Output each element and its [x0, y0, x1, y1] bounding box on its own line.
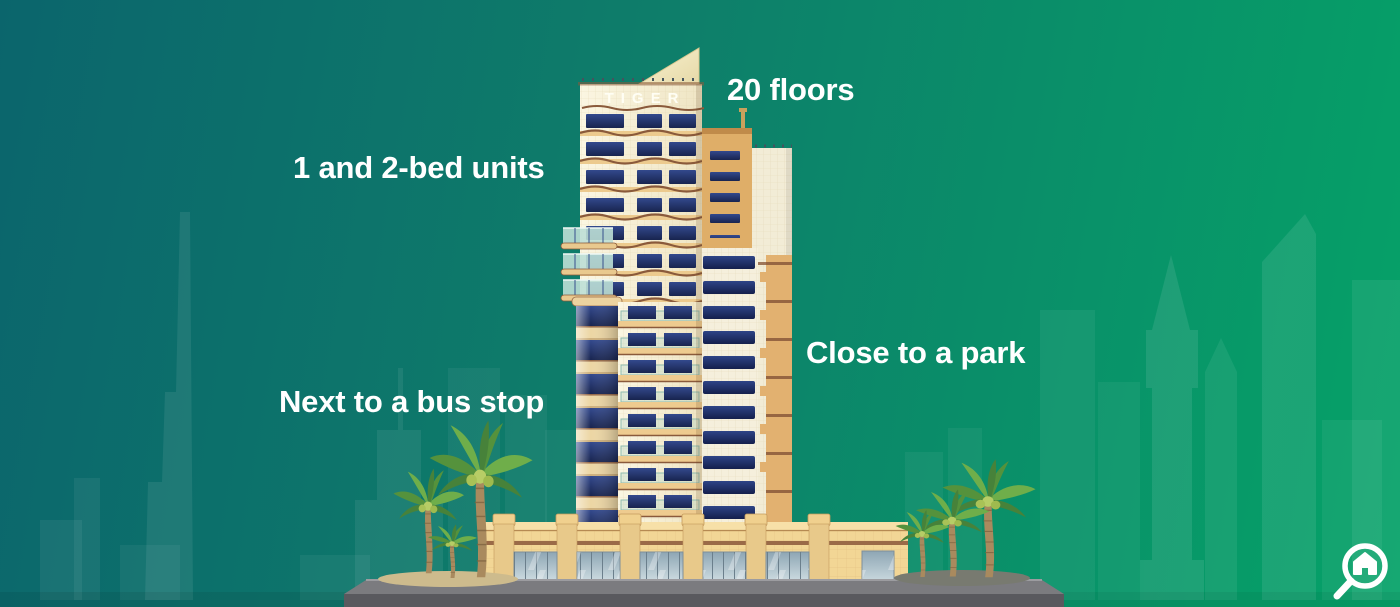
foreground-shadow-strip-left — [0, 592, 360, 607]
annotation-bed-units: 1 and 2-bed units — [293, 152, 545, 183]
main-tower: TIGER — [561, 80, 704, 531]
skyline-silhouette-right — [905, 214, 1400, 600]
sail-fin — [639, 48, 699, 84]
sand-mound-right — [894, 570, 1030, 586]
sand-mound-left — [378, 571, 518, 587]
podium — [478, 514, 908, 585]
scene-illustration: TIGER — [0, 0, 1400, 607]
annotation-bus-stop: Next to a bus stop — [279, 386, 544, 417]
lower-floors-windows — [618, 302, 702, 530]
clock-tower-silhouette — [1140, 255, 1204, 600]
annotation-park: Close to a park — [806, 337, 1025, 368]
foreground-shadow-strip-right — [1055, 592, 1400, 607]
back-towers — [700, 108, 792, 530]
annotation-floors: 20 floors — [727, 74, 854, 105]
tower-sign-text: TIGER — [605, 90, 686, 107]
balcony-stack — [561, 228, 617, 301]
tiger-tower-infographic: TIGER — [0, 0, 1400, 607]
upper-floors-windows — [580, 110, 702, 306]
